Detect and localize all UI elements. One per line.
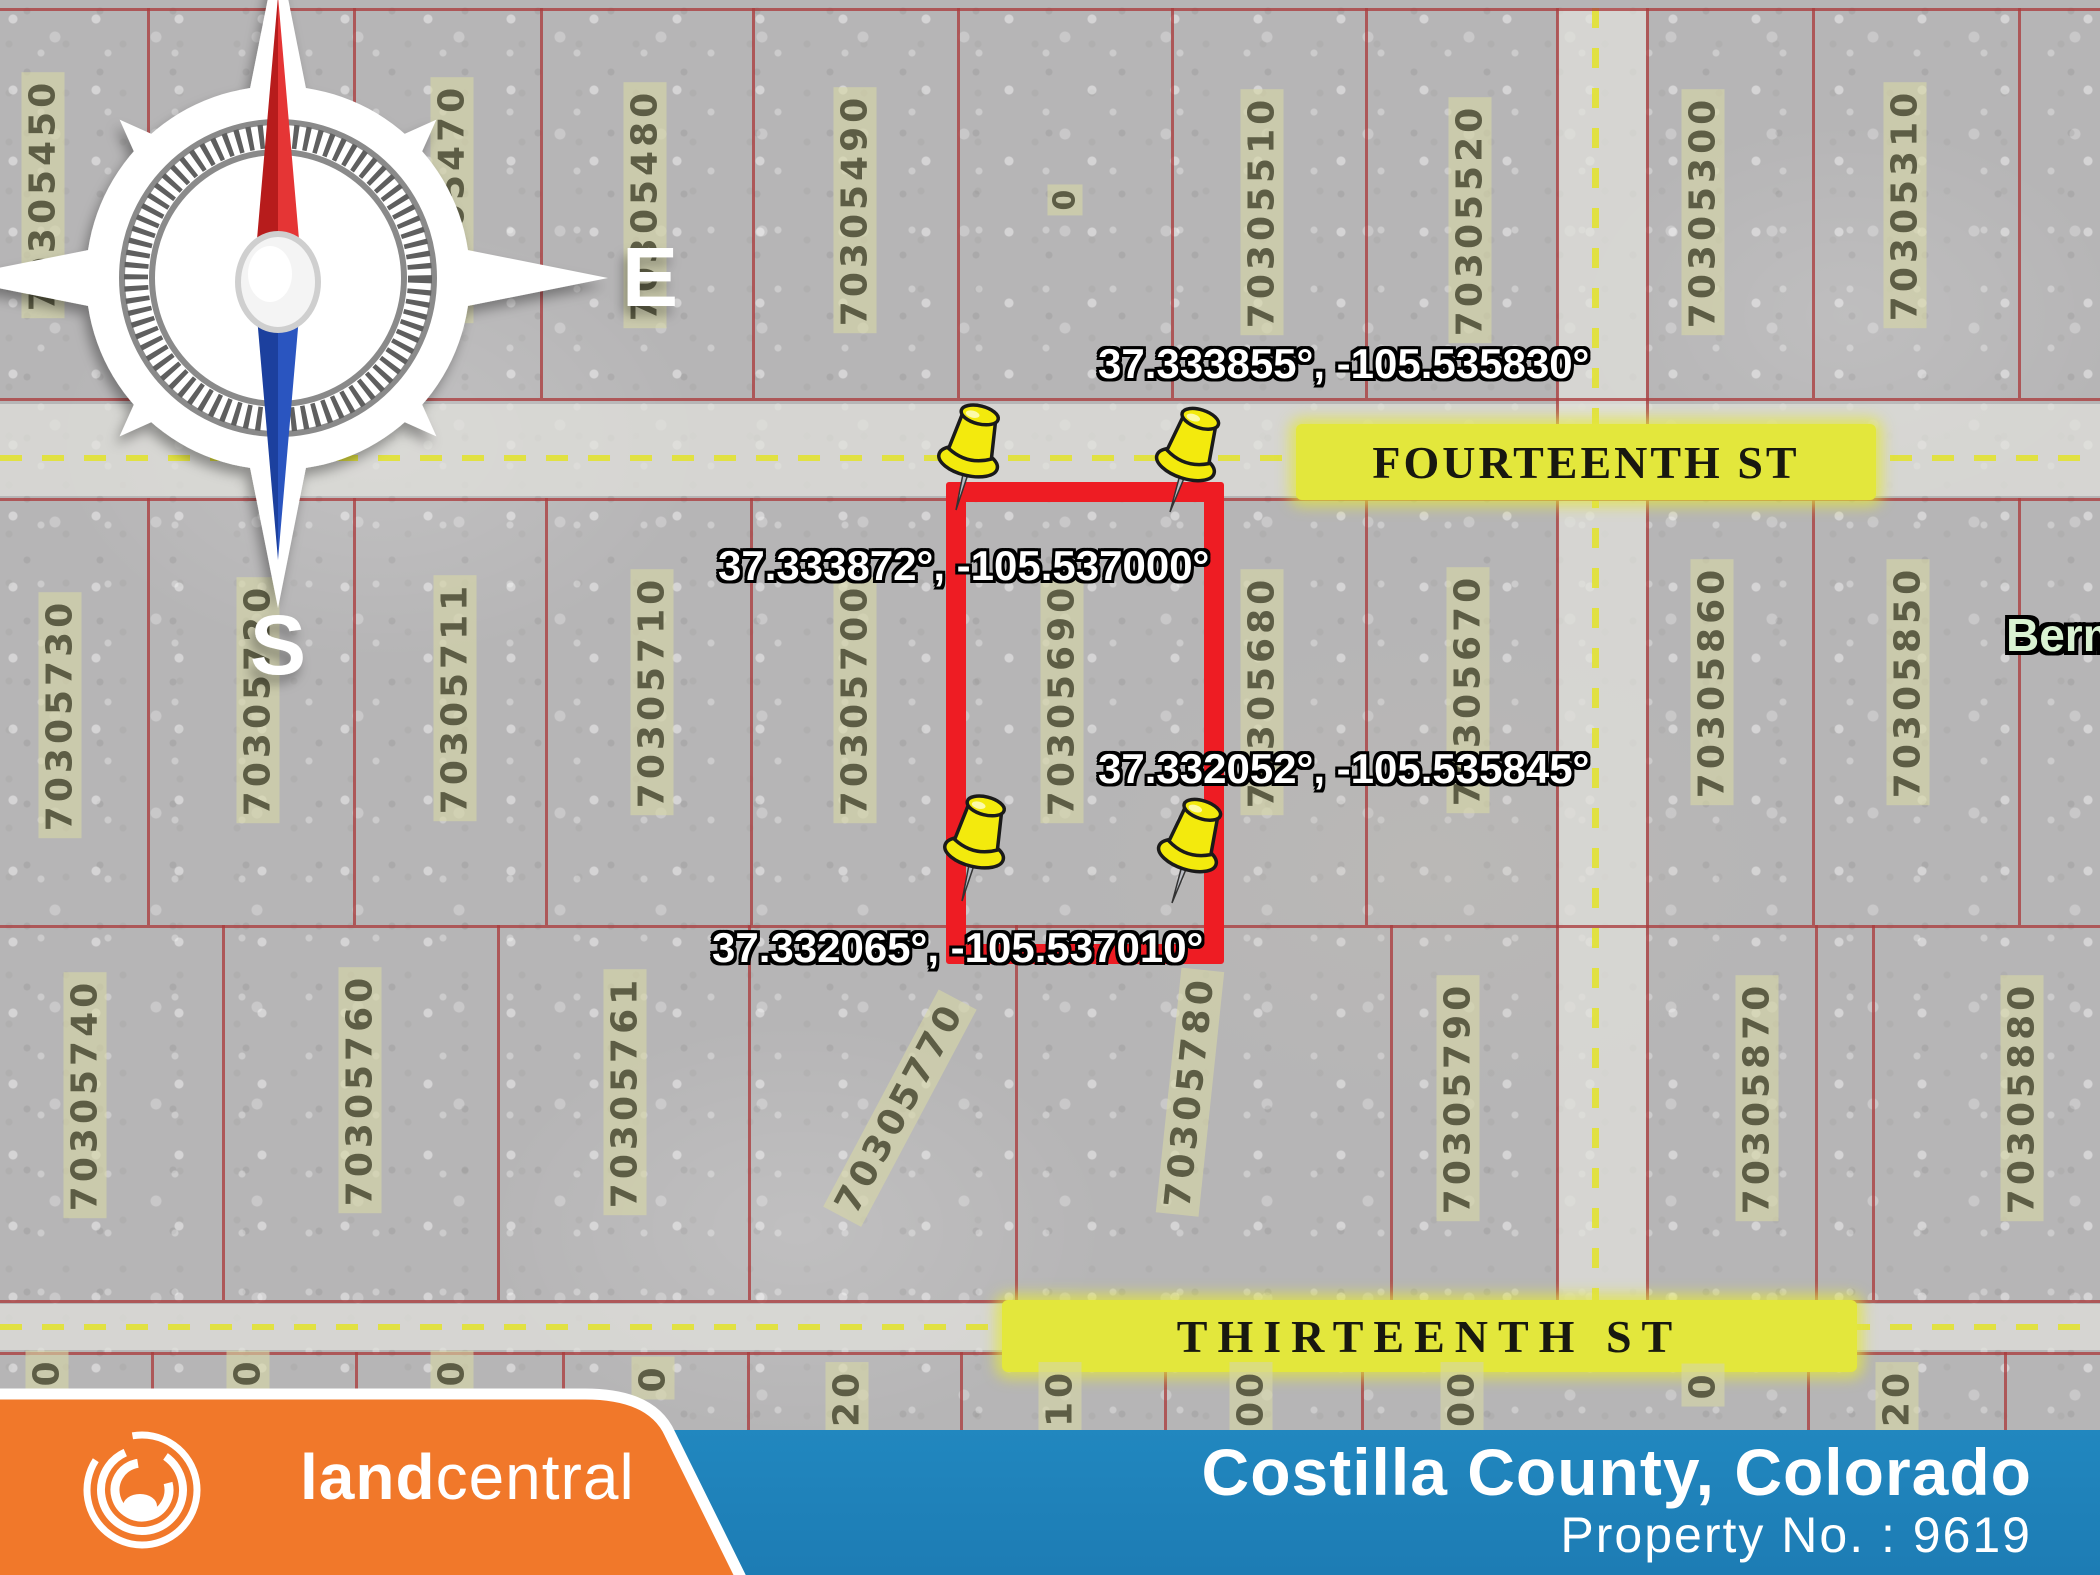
parcel-label: 70305510 — [1241, 89, 1284, 335]
grid-line-vertical — [2018, 8, 2021, 398]
street-label-fourteenth: FOURTEENTH ST — [1296, 424, 1876, 500]
parcel-label: 70305790 — [1437, 975, 1480, 1221]
grid-line-vertical — [497, 925, 500, 1300]
parcel-label: 70305761 — [604, 969, 647, 1215]
landcentral-logo-icon — [72, 1420, 212, 1560]
parcel-label: 70305860 — [1691, 559, 1734, 805]
compass-east-label: E — [622, 230, 678, 324]
pushpin-icon — [856, 380, 1056, 530]
grid-line-vertical — [957, 8, 960, 398]
property-map-canvas: 70305450 70305460 70305470 70305480 7030… — [0, 0, 2100, 1575]
parcel-label-partial: 00 — [1230, 1362, 1273, 1434]
cross-street-centerline — [1592, 8, 1599, 1352]
parcel-label: 70305740 — [64, 972, 107, 1218]
parcel-label-partial: 20 — [826, 1362, 869, 1434]
brand-central: central — [436, 1441, 635, 1513]
parcel-label: 70305730 — [39, 592, 82, 838]
parcel-label: 70305520 — [1449, 97, 1492, 343]
pushpin-icon — [862, 771, 1062, 921]
grid-line-vertical — [147, 498, 150, 925]
parcel-label: 70305880 — [2001, 975, 2044, 1221]
grid-line-vertical — [1365, 498, 1368, 925]
compass-rose-icon: N S W E — [78, 78, 478, 478]
parcel-label-zero: 0 — [1048, 185, 1083, 216]
compass-south-label: S — [250, 598, 306, 692]
parcel-label: 70305300 — [1682, 89, 1725, 335]
pushpin-icon — [1072, 773, 1272, 923]
coordinate-bottom-left: 37.332065°, -105.537010° — [712, 924, 1203, 972]
coordinate-top-left: 37.333872°, -105.537000° — [718, 542, 1209, 590]
grid-line-vertical — [1872, 925, 1875, 1300]
grid-line-horizontal — [0, 8, 2100, 11]
grid-line-vertical — [1646, 8, 1649, 1352]
parcel-label: 70305310 — [1884, 82, 1927, 328]
parcel-label: 70305710 — [631, 569, 674, 815]
parcel-label-partial: 20 — [1876, 1362, 1919, 1434]
grid-line-vertical — [1815, 925, 1818, 1300]
grid-line-vertical — [1390, 925, 1393, 1300]
parcel-label: 70305780 — [1156, 967, 1225, 1217]
parcel-label-partial: 10 — [1039, 1362, 1082, 1434]
parcel-label: 70305770 — [823, 989, 977, 1227]
brand-land: land — [300, 1441, 436, 1513]
street-label-thirteenth: THIRTEENTH ST — [1002, 1300, 1857, 1372]
parcel-label: 70305490 — [834, 87, 877, 333]
parcel-label: 70305870 — [1736, 975, 1779, 1221]
grid-line-vertical — [222, 925, 225, 1300]
parcel-label-partial: 0 — [1682, 1363, 1725, 1406]
parcel-label: 70305760 — [339, 967, 382, 1213]
grid-line-vertical — [353, 498, 356, 925]
landcentral-wordmark: landcentral — [300, 1440, 635, 1514]
parcel-label: 70305850 — [1887, 559, 1930, 805]
grid-line-vertical — [752, 8, 755, 398]
berm-edge-label: Berm — [2006, 608, 2100, 662]
grid-line-vertical — [540, 8, 543, 398]
grid-line-vertical — [1015, 925, 1018, 1300]
cross-street-road — [1558, 8, 1646, 1352]
coordinate-top-right: 37.333855°, -105.535830° — [1098, 340, 1589, 388]
grid-line-vertical — [1812, 8, 1815, 398]
footer-property-number: Property No. : 9619 — [1560, 1506, 2032, 1564]
grid-line-vertical — [1556, 8, 1559, 1352]
grid-line-vertical — [2018, 498, 2021, 925]
parcel-label-partial: 00 — [1441, 1362, 1484, 1434]
grid-line-vertical — [1812, 498, 1815, 925]
grid-line-vertical — [748, 925, 751, 1300]
pushpin-icon — [1070, 382, 1270, 532]
parcel-label: 70305711 — [434, 575, 477, 821]
footer-county-title: Costilla County, Colorado — [1202, 1434, 2032, 1510]
grid-line-vertical — [545, 498, 548, 925]
